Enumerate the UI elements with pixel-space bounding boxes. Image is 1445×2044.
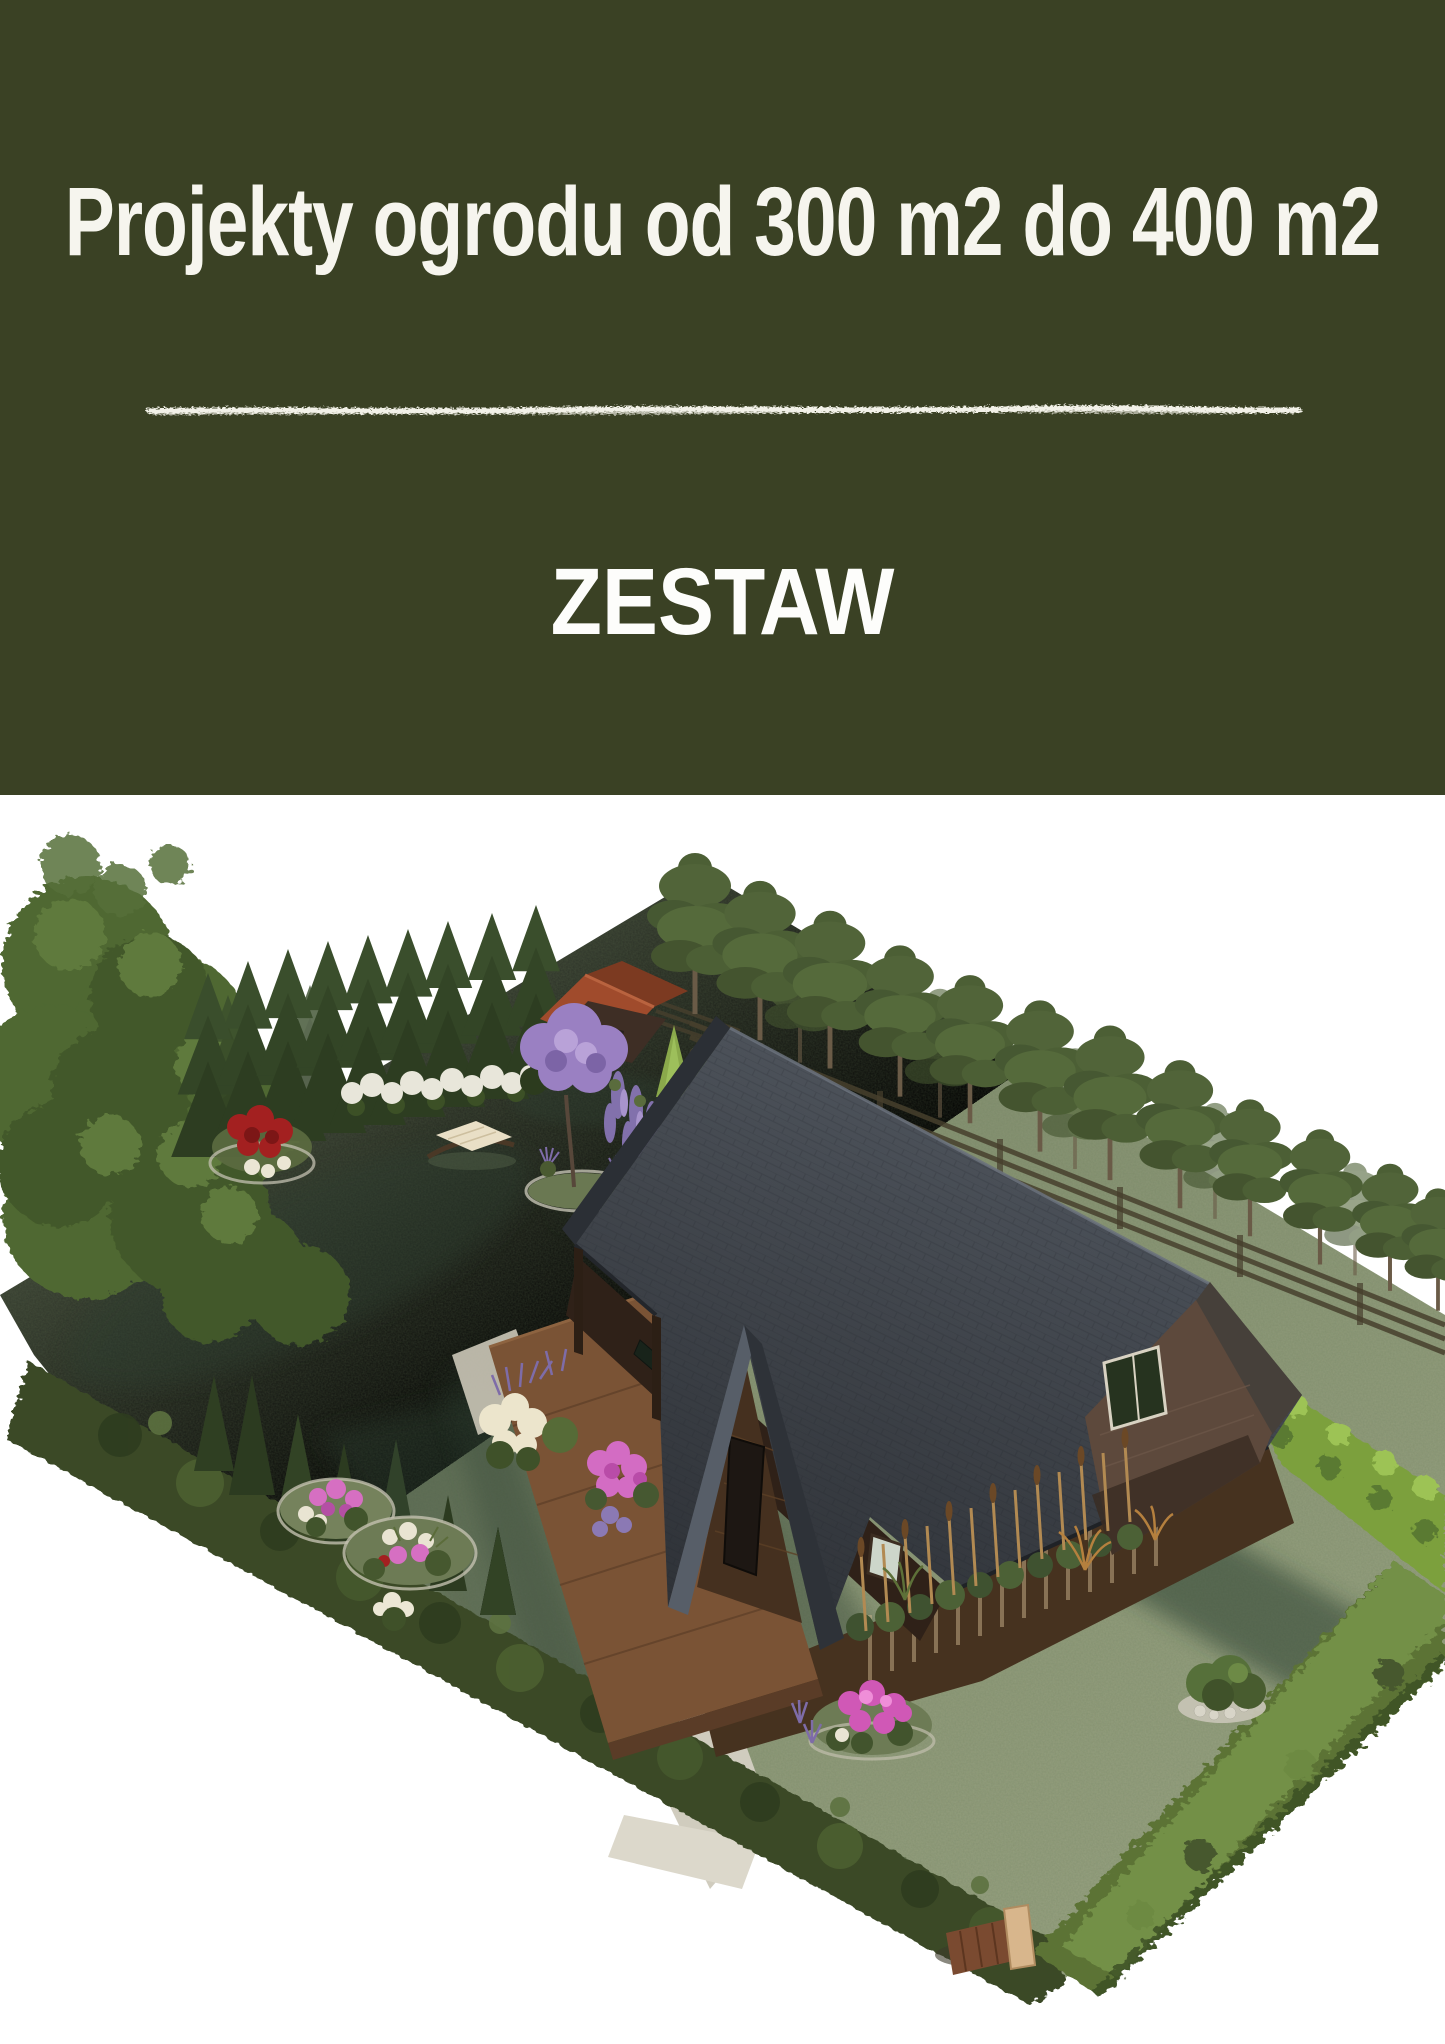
garden-render-svg (0, 795, 1445, 2044)
page: Projekty ogrodu od 300 m2 do 400 m2 ZEST… (0, 0, 1445, 2044)
subtitle: ZESTAW (0, 554, 1445, 649)
page-title: Projekty ogrodu od 300 m2 do 400 m2 (0, 173, 1445, 271)
entry-door (724, 1437, 764, 1575)
flower-bed-circular-2 (344, 1517, 476, 1589)
divider-line (149, 408, 1299, 411)
header-banner: Projekty ogrodu od 300 m2 do 400 m2 ZEST… (0, 0, 1445, 795)
garden-render (0, 795, 1445, 2044)
chalk-divider (145, 398, 1303, 424)
